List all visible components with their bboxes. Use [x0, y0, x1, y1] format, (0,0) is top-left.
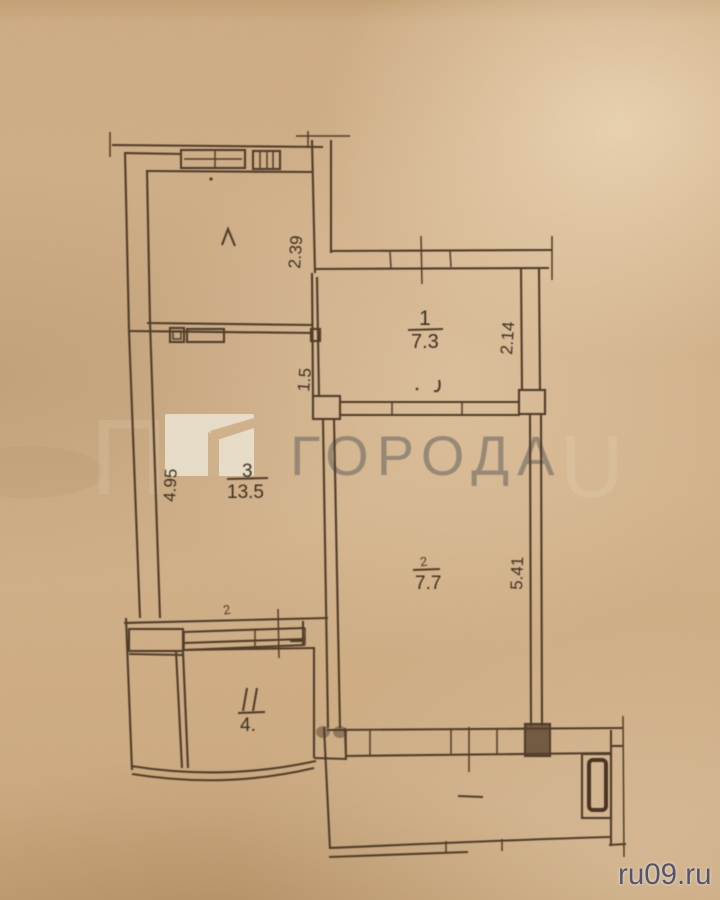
svg-text:U: U: [560, 417, 624, 516]
svg-text:7.7: 7.7: [415, 573, 441, 594]
svg-text:1: 1: [419, 307, 431, 330]
svg-text:13.5: 13.5: [227, 482, 264, 503]
svg-text:5.41: 5.41: [507, 556, 527, 590]
svg-text:ru09.ru: ru09.ru: [618, 858, 711, 891]
svg-text:4.: 4.: [240, 715, 256, 736]
svg-text:1.5: 1.5: [294, 367, 315, 392]
svg-text:2.14: 2.14: [497, 321, 518, 355]
svg-text:ГОРОДА: ГОРОДА: [290, 424, 562, 487]
svg-text:2.39: 2.39: [285, 235, 306, 269]
svg-text:4.95: 4.95: [160, 468, 181, 502]
svg-text:7.3: 7.3: [411, 331, 439, 353]
